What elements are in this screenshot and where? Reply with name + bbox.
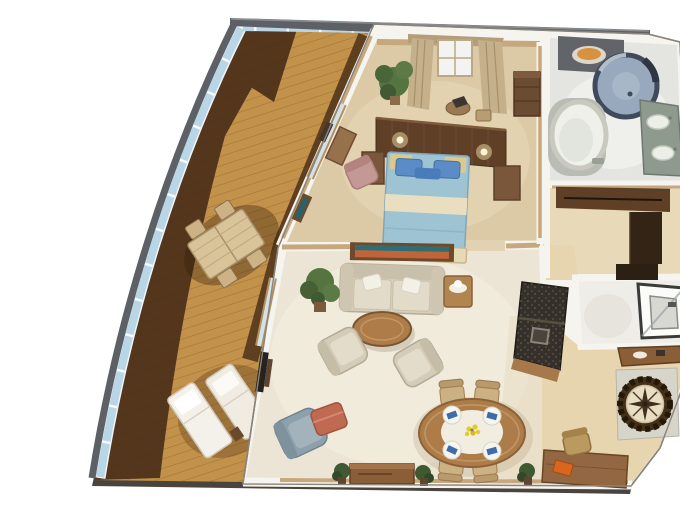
sofa <box>339 263 445 315</box>
bedroom-living-wall-face2 <box>506 245 540 246</box>
console-ornament <box>656 350 665 356</box>
floor-plan-image <box>40 16 680 502</box>
place-setting <box>483 442 501 460</box>
nightstand-right <box>494 166 520 200</box>
wall-art <box>350 242 454 262</box>
side-table-lamp <box>444 276 472 307</box>
place-setting <box>443 406 461 424</box>
floor-plan-svg <box>40 16 680 502</box>
writing-desk <box>542 450 628 488</box>
dresser <box>514 72 540 116</box>
sideboard <box>350 464 414 484</box>
place-setting <box>483 407 501 425</box>
wardrobe-low-shelf <box>616 264 658 280</box>
shower-fixture <box>668 302 676 307</box>
tub-fixture <box>592 158 604 164</box>
vanity-sink <box>647 115 669 129</box>
console-bowl <box>633 352 647 359</box>
place-setting <box>443 441 461 459</box>
bedroom-stool <box>476 110 491 121</box>
bedroom-doorway <box>461 240 505 251</box>
double-vanity <box>640 100 680 176</box>
table-lamp <box>454 280 462 288</box>
plant-pot <box>390 96 400 105</box>
vanity-sink <box>652 146 674 160</box>
round-tub <box>548 98 606 176</box>
plant-pot <box>314 302 326 312</box>
bar-sink <box>531 328 549 344</box>
bed-lumbar-pillow <box>414 167 441 179</box>
shower-room-shading <box>584 294 632 338</box>
desk-chair <box>561 427 592 457</box>
console-table <box>618 346 680 366</box>
wardrobe-right-unit <box>630 212 662 264</box>
compass-rose-inlay <box>618 377 672 431</box>
granite-speckles <box>514 282 568 370</box>
vessel-sink-orange <box>577 48 601 60</box>
